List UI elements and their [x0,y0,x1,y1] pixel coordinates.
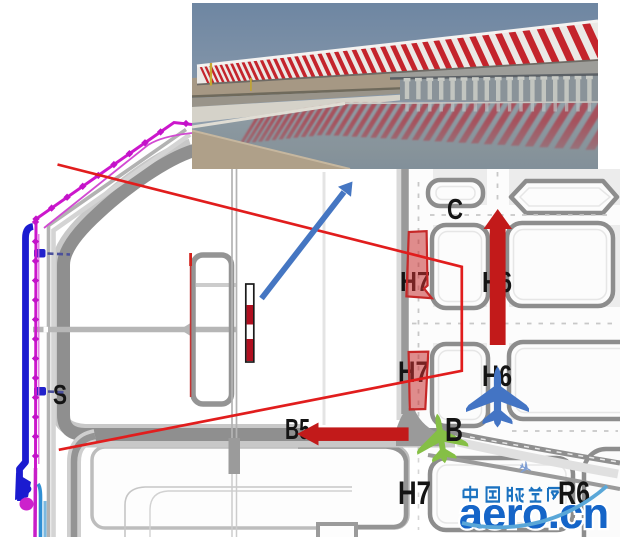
svg-text:C: C [447,194,463,226]
svg-text:R6: R6 [558,475,590,511]
svg-text:B: B [445,411,463,448]
svg-text:S: S [53,379,67,410]
svg-text:H7: H7 [398,475,431,511]
